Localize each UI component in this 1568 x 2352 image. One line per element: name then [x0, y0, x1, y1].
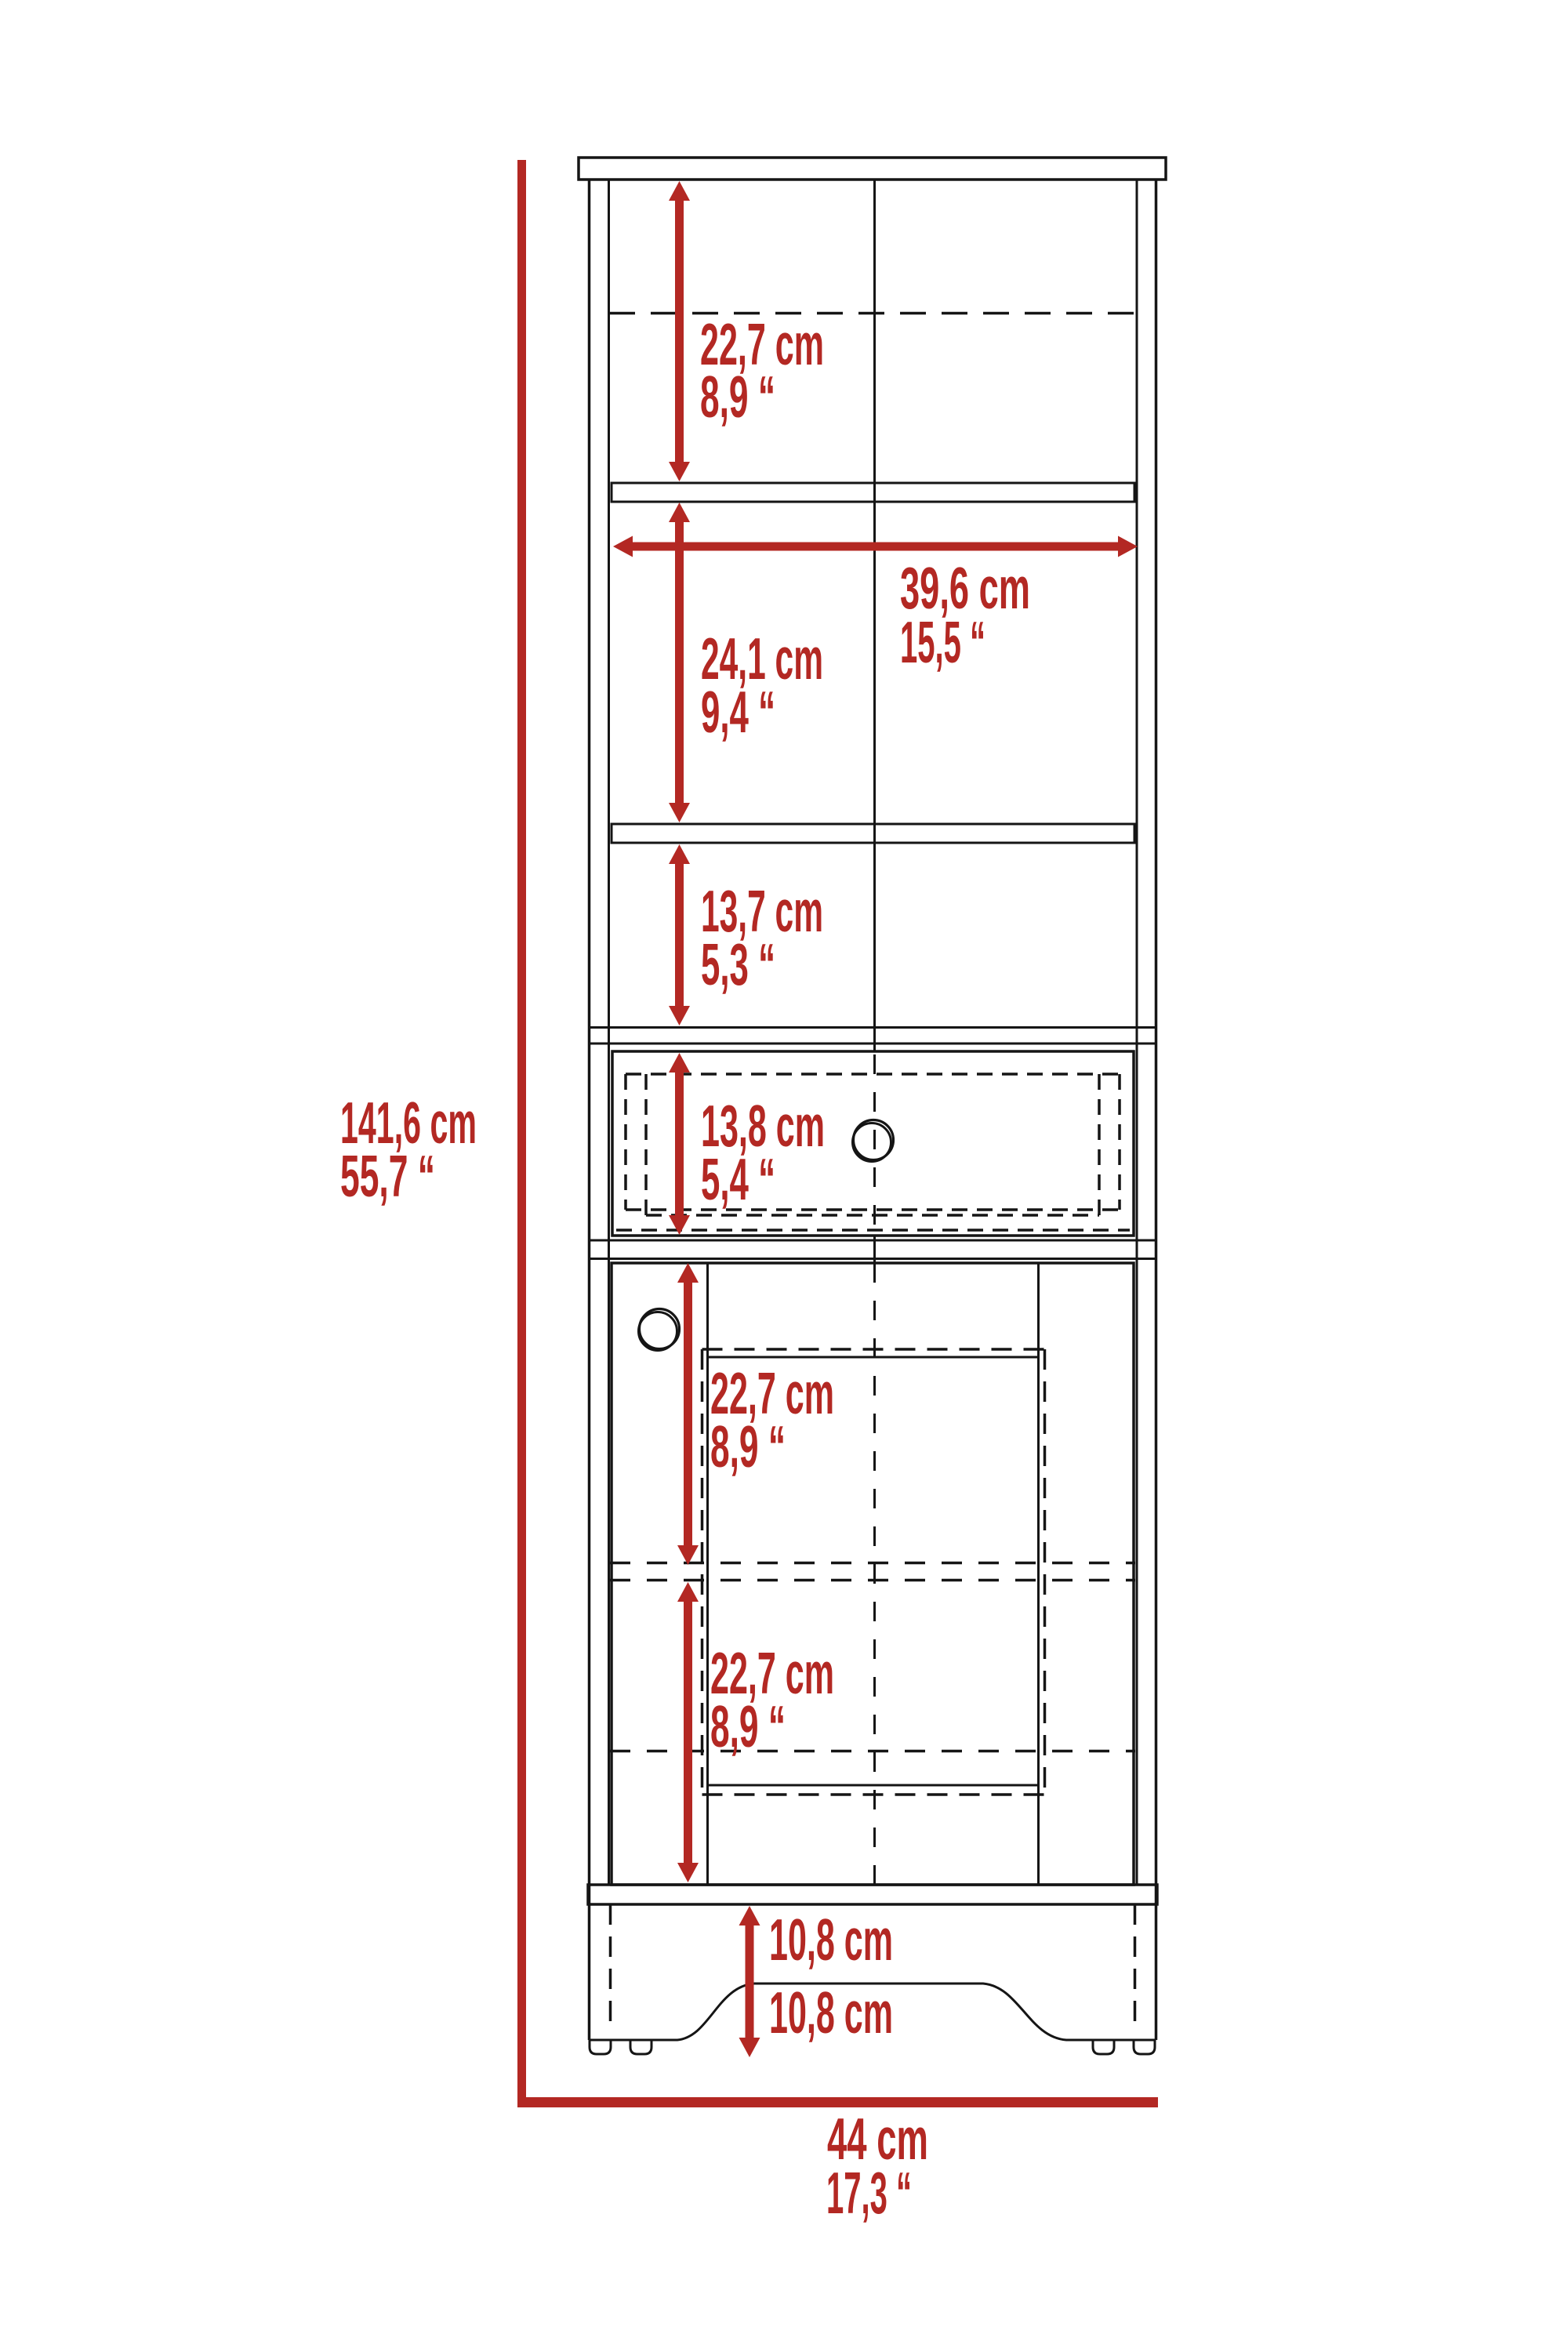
svg-text:55,7 “: 55,7 “ — [340, 1143, 435, 1209]
svg-text:9,4 “: 9,4 “ — [701, 679, 775, 745]
svg-text:8,9 “: 8,9 “ — [710, 1693, 786, 1759]
svg-text:5,3 “: 5,3 “ — [701, 931, 775, 997]
svg-text:10,8 cm: 10,8 cm — [769, 1980, 893, 2045]
svg-text:15,5 “: 15,5 “ — [900, 609, 985, 675]
svg-text:5,4 “: 5,4 “ — [701, 1146, 775, 1212]
svg-text:8,9 “: 8,9 “ — [700, 364, 775, 430]
svg-text:17,3 “: 17,3 “ — [826, 2160, 912, 2226]
svg-text:8,9 “: 8,9 “ — [710, 1414, 786, 1479]
svg-text:10,8 cm: 10,8 cm — [769, 1907, 893, 1973]
